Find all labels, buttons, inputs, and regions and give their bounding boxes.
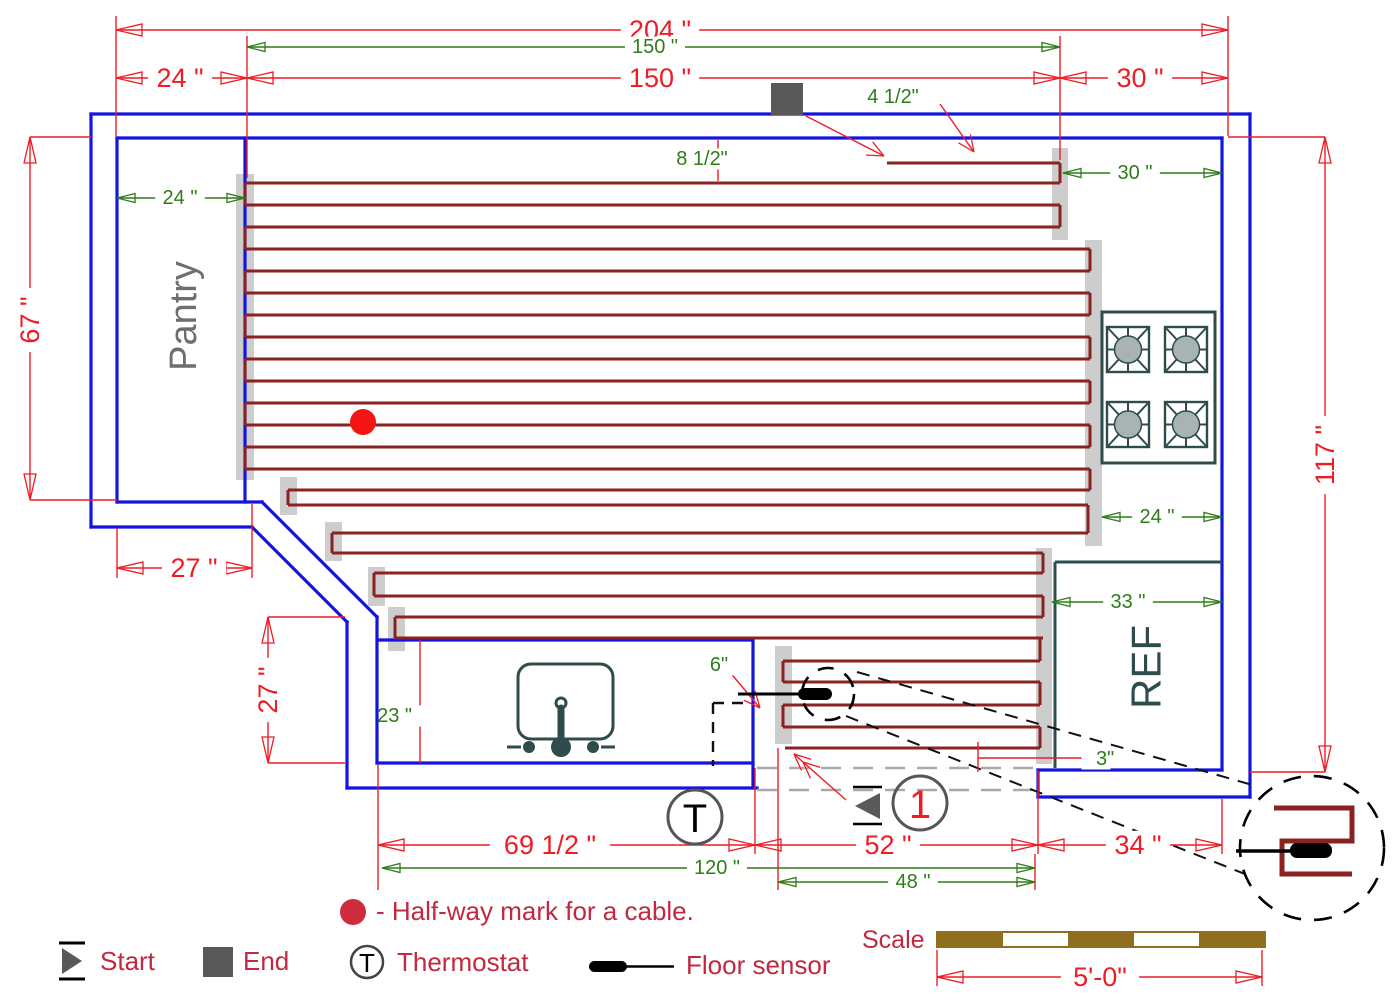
dim-text: 52 " bbox=[856, 830, 920, 860]
dim-note: 4 1/2" bbox=[858, 86, 928, 108]
dim-text-text: 24 " bbox=[156, 63, 203, 93]
legend-floor-sensor: Floor sensor bbox=[588, 950, 831, 981]
legend-end-label: End bbox=[243, 946, 289, 977]
dim-text-text: 24 " bbox=[1140, 506, 1175, 528]
dim-text: 27 " bbox=[162, 553, 226, 583]
cable-number-callout: 1 bbox=[893, 776, 947, 830]
dim-text: 117 " bbox=[1310, 416, 1340, 494]
dim-text-text: 30 " bbox=[1116, 63, 1163, 93]
dim-note: 23 " bbox=[377, 705, 437, 727]
dim-text-text: 52 " bbox=[864, 830, 911, 860]
dim-note-text: 3" bbox=[1096, 748, 1114, 770]
thermostat-icon: T bbox=[347, 942, 387, 982]
dim-text: 24 " bbox=[155, 187, 205, 209]
dim-text: 150 " bbox=[625, 36, 685, 58]
dim-note-text: 6" bbox=[710, 654, 728, 676]
dim-note-text: 23 " bbox=[377, 705, 412, 727]
wall bbox=[262, 502, 377, 617]
dim-text-text: 30 " bbox=[1118, 162, 1153, 184]
dim-text-text: 120 " bbox=[694, 857, 740, 879]
legend-floor-sensor-label: Floor sensor bbox=[686, 950, 831, 981]
floorplan-canvas: 204 "24 "150 "30 "67 "117 "27 "27 "69 1/… bbox=[0, 0, 1400, 1000]
dim-text: 120 " bbox=[687, 857, 747, 879]
svg-text:T: T bbox=[683, 797, 707, 841]
scale-segment bbox=[1003, 933, 1068, 946]
leader-line bbox=[806, 116, 884, 156]
dim-text: 24 " bbox=[1132, 506, 1182, 528]
dim-note: 3" bbox=[1082, 748, 1115, 770]
scale-segment bbox=[938, 933, 1003, 946]
thermostat-symbol: T bbox=[668, 790, 722, 844]
dim-text-text: 150 " bbox=[629, 63, 691, 93]
leader-arrow bbox=[959, 143, 974, 152]
cable-start-marker bbox=[855, 793, 880, 819]
cable-end-marker bbox=[771, 83, 803, 115]
dim-text-text: 27 " bbox=[170, 553, 217, 583]
end-icon bbox=[203, 947, 233, 977]
halfway-legend: - Half-way mark for a cable. bbox=[340, 896, 694, 927]
scale-caption: Scale bbox=[862, 926, 925, 955]
stove-burner-icon bbox=[1165, 327, 1207, 372]
dim-text: 24 " bbox=[148, 63, 212, 93]
dim-text: 48 " bbox=[888, 871, 938, 893]
dim-note: 8 1/2" bbox=[667, 148, 737, 170]
dim-text-text: 24 " bbox=[163, 187, 198, 209]
dim-text-text: 150 " bbox=[632, 36, 678, 58]
leader-line bbox=[940, 104, 974, 152]
dim-text-text: 117 " bbox=[1310, 425, 1340, 485]
legend-thermostat: T Thermostat bbox=[347, 942, 529, 982]
stove-burner-icon bbox=[1107, 327, 1149, 372]
dim-note-text: 8 1/2" bbox=[676, 148, 728, 170]
scale-label: Scale bbox=[862, 926, 925, 955]
ref-label-text: REF bbox=[1123, 625, 1170, 709]
pantry-label-text: Pantry bbox=[163, 261, 205, 371]
legend-thermostat-label: Thermostat bbox=[397, 947, 529, 978]
dim-note-text: 4 1/2" bbox=[867, 86, 919, 108]
dim-text: 30 " bbox=[1110, 162, 1160, 184]
dim-text-text: 67 " bbox=[15, 296, 45, 343]
dim-text: 30 " bbox=[1108, 63, 1172, 93]
sink-icon bbox=[507, 664, 615, 757]
svg-text:T: T bbox=[359, 948, 375, 978]
dim-text-text: 33 " bbox=[1111, 591, 1146, 613]
dim-text-text: 48 " bbox=[896, 871, 931, 893]
legend-start: Start bbox=[56, 938, 155, 984]
magnified-detail bbox=[1236, 776, 1384, 920]
dim-text-text: 27 " bbox=[253, 666, 283, 713]
scale-segment bbox=[1134, 933, 1199, 946]
halfway-dot-icon bbox=[340, 899, 366, 925]
cable-guide-bar bbox=[1036, 548, 1052, 764]
dim-text: 33 " bbox=[1103, 591, 1153, 613]
legend-start-label: Start bbox=[100, 946, 155, 977]
dim-note: 6" bbox=[705, 654, 734, 676]
start-icon bbox=[56, 938, 90, 984]
halfway-mark-dot bbox=[350, 409, 376, 435]
floor-sensor-icon bbox=[588, 954, 676, 978]
heating-plan-drawing: 204 "24 "150 "30 "67 "117 "27 "27 "69 1/… bbox=[0, 0, 1400, 1000]
legend-end: End bbox=[203, 946, 289, 977]
pantry-label: Pantry bbox=[163, 253, 205, 380]
scale-bar bbox=[936, 931, 1266, 948]
dim-text: 69 1/2 " bbox=[490, 830, 610, 860]
halfway-note: - Half-way mark for a cable. bbox=[376, 896, 694, 927]
ref-label: REF bbox=[1123, 625, 1170, 709]
dim-text: 34 " bbox=[1106, 830, 1170, 860]
dim-text: 67 " bbox=[15, 288, 45, 352]
cable-guide-bar bbox=[1085, 240, 1102, 546]
dim-text-text: 69 1/2 " bbox=[504, 830, 596, 860]
scale-segment bbox=[1068, 933, 1133, 946]
dim-text: 150 " bbox=[621, 63, 699, 93]
dim-text: 27 " bbox=[253, 658, 283, 722]
stove-outline bbox=[1102, 312, 1215, 463]
leader-line bbox=[794, 754, 846, 800]
scale-segment bbox=[1199, 933, 1264, 946]
dim-text-text: 5'-0" bbox=[1073, 962, 1127, 992]
svg-text:1: 1 bbox=[909, 783, 931, 827]
floor-sensor-plan bbox=[738, 668, 854, 720]
stove-burner-icon bbox=[1165, 402, 1207, 447]
dim-text-text: 34 " bbox=[1114, 830, 1161, 860]
dim-text: 5'-0" bbox=[1061, 962, 1139, 992]
stove-burner-icon bbox=[1107, 402, 1149, 447]
